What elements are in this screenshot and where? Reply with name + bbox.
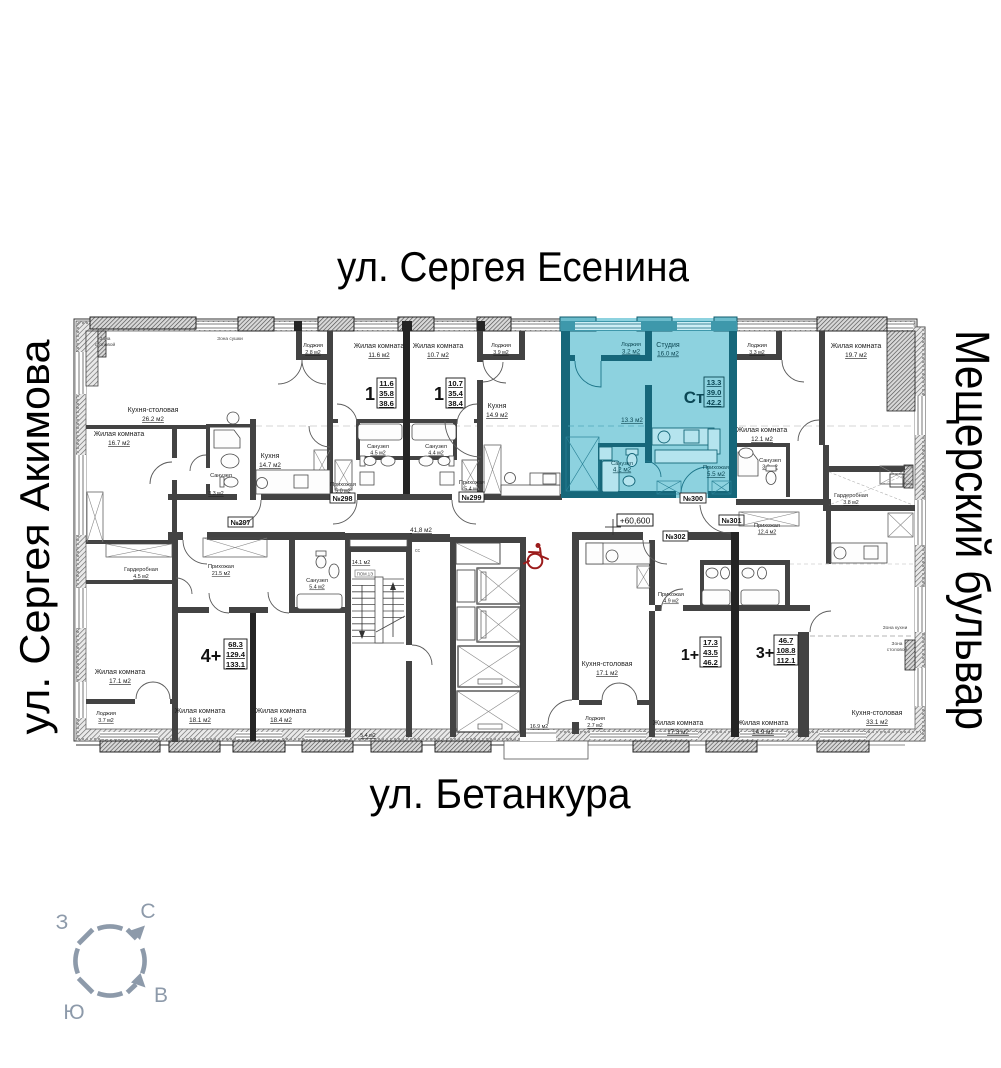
svg-text:112.1: 112.1 (777, 656, 796, 665)
svg-text:14.9 м2: 14.9 м2 (752, 729, 774, 736)
svg-text:133.1: 133.1 (226, 660, 246, 669)
svg-text:5.4 м2: 5.4 м2 (360, 733, 375, 739)
svg-text:16.9 м2: 16.9 м2 (530, 724, 548, 730)
svg-text:3.9 м2: 3.9 м2 (493, 350, 508, 356)
svg-text:13.3: 13.3 (707, 378, 722, 387)
svg-text:Кухня-столовая: Кухня-столовая (128, 407, 179, 414)
svg-text:5.5 м2: 5.5 м2 (707, 471, 726, 478)
svg-text:129.4: 129.4 (226, 650, 246, 659)
svg-text:З: З (56, 911, 69, 934)
svg-text:21.5 м2: 21.5 м2 (212, 571, 230, 577)
svg-text:1: 1 (365, 384, 375, 404)
svg-text:1+: 1+ (681, 647, 699, 664)
svg-text:Лоджия: Лоджия (96, 711, 116, 717)
svg-text:4.5 м2: 4.5 м2 (133, 574, 148, 580)
svg-text:№302: №302 (665, 532, 685, 541)
svg-text:43.5: 43.5 (703, 648, 719, 657)
svg-text:Санузел: Санузел (425, 444, 447, 450)
svg-text:18.1 м2: 18.1 м2 (189, 717, 211, 724)
svg-text:46.7: 46.7 (779, 636, 794, 645)
svg-text:+60,600: +60,600 (620, 516, 651, 526)
svg-text:1: 1 (434, 384, 444, 404)
svg-text:сс: сс (415, 548, 421, 554)
svg-text:17.1 м2: 17.1 м2 (109, 678, 131, 685)
svg-text:11.6 м2: 11.6 м2 (368, 352, 390, 359)
svg-text:Зона: Зона (892, 641, 903, 647)
svg-text:№301: №301 (721, 516, 741, 525)
svg-text:35.8: 35.8 (379, 389, 394, 398)
svg-text:108.8: 108.8 (776, 646, 795, 655)
svg-text:Жилая комната: Жилая комната (94, 431, 145, 438)
svg-text:В: В (154, 984, 168, 1007)
svg-text:46.2: 46.2 (703, 658, 718, 667)
svg-text:2.7 м2: 2.7 м2 (587, 723, 602, 729)
svg-text:ул. Сергея Есенина: ул. Сергея Есенина (337, 243, 690, 290)
svg-text:14.7 м2: 14.7 м2 (259, 462, 281, 469)
svg-text:38.6: 38.6 (379, 399, 394, 408)
svg-text:С: С (140, 900, 155, 923)
svg-text:39.0: 39.0 (707, 388, 722, 397)
svg-text:38.4: 38.4 (448, 399, 464, 408)
svg-text:19.7 м2: 19.7 м2 (845, 352, 867, 359)
svg-text:Гардеробная: Гардеробная (124, 567, 158, 573)
svg-text:Мещерский бульвар: Мещерский бульвар (945, 330, 998, 730)
svg-text:Лоджия: Лоджия (585, 716, 605, 722)
svg-text:12.4 м2: 12.4 м2 (758, 530, 776, 536)
svg-text:17.1 м2: 17.1 м2 (596, 670, 618, 677)
svg-text:Санузел: Санузел (367, 444, 389, 450)
svg-text:2.8 м2: 2.8 м2 (305, 350, 320, 356)
svg-text:№299: №299 (461, 493, 481, 502)
svg-text:12.1 м2: 12.1 м2 (751, 436, 773, 443)
svg-text:Зона сушки: Зона сушки (217, 336, 243, 342)
svg-text:ул. Сергея Акимова: ул. Сергея Акимова (11, 339, 58, 735)
svg-text:Прихожая: Прихожая (459, 480, 485, 486)
svg-text:ПОМ.1Э: ПОМ.1Э (357, 572, 373, 577)
svg-text:Санузел: Санузел (306, 578, 328, 584)
svg-text:Жилая комната: Жилая комната (653, 720, 704, 727)
svg-text:14.9 м2: 14.9 м2 (486, 412, 508, 419)
svg-text:16.0 м2: 16.0 м2 (657, 351, 679, 358)
svg-text:18.4 м2: 18.4 м2 (270, 717, 292, 724)
svg-text:Лоджия: Лоджия (303, 343, 323, 349)
svg-text:26.2 м2: 26.2 м2 (142, 416, 164, 423)
svg-text:Ст: Ст (684, 388, 705, 407)
svg-text:ул. Бетанкура: ул. Бетанкура (370, 770, 632, 817)
svg-text:4.2 м2: 4.2 м2 (613, 467, 632, 474)
svg-text:Жилая комната: Жилая комната (413, 343, 464, 350)
svg-text:17.3: 17.3 (703, 638, 718, 647)
svg-text:Кухня-столовая: Кухня-столовая (852, 710, 903, 717)
svg-text:Жилая комната: Жилая комната (256, 708, 307, 715)
svg-text:10.7: 10.7 (448, 379, 463, 388)
svg-text:35.4: 35.4 (448, 389, 464, 398)
svg-text:Жилая комната: Жилая комната (737, 427, 788, 434)
svg-text:3.7 м2: 3.7 м2 (98, 718, 113, 724)
svg-text:42.2: 42.2 (707, 398, 722, 407)
svg-text:Лоджия: Лоджия (491, 343, 511, 349)
svg-text:4.9 м2: 4.9 м2 (663, 599, 678, 605)
svg-text:Санузел: Санузел (759, 458, 781, 464)
svg-text:Ю: Ю (63, 1001, 84, 1024)
svg-text:Кухня-столовая: Кухня-столовая (582, 661, 633, 668)
svg-text:Гардеробная: Гардеробная (834, 493, 868, 499)
svg-text:Жилая комната: Жилая комната (175, 708, 226, 715)
svg-text:столовой: столовой (887, 646, 908, 653)
svg-text:10.7 м2: 10.7 м2 (427, 352, 449, 359)
svg-text:Жилая комната: Жилая комната (738, 720, 789, 727)
svg-text:Зона: Зона (100, 336, 111, 342)
svg-text:17.3 м2: 17.3 м2 (667, 729, 689, 736)
svg-text:4.5 м2: 4.5 м2 (370, 451, 385, 457)
svg-text:Зона кухни: Зона кухни (883, 625, 908, 631)
svg-text:16.7 м2: 16.7 м2 (108, 440, 130, 447)
svg-text:Студия: Студия (656, 342, 680, 349)
svg-text:Жилая комната: Жилая комната (831, 343, 882, 350)
svg-text:68.3: 68.3 (228, 640, 243, 649)
svg-text:41,8 м2: 41,8 м2 (410, 527, 432, 534)
svg-text:Лоджия: Лоджия (747, 343, 767, 349)
svg-text:№297: №297 (230, 518, 250, 527)
svg-text:Кухня: Кухня (488, 403, 507, 410)
svg-text:4.4 м2: 4.4 м2 (428, 451, 443, 457)
svg-text:14.1 м2: 14.1 м2 (352, 560, 370, 566)
svg-text:Кухня: Кухня (261, 453, 280, 460)
svg-text:4+: 4+ (201, 646, 222, 666)
svg-text:3.3 м2: 3.3 м2 (749, 350, 764, 356)
svg-text:3+: 3+ (756, 645, 774, 662)
svg-text:столовой: столовой (95, 341, 116, 348)
svg-text:Жилая комната: Жилая комната (354, 343, 405, 350)
svg-text:Прихожая: Прихожая (208, 564, 234, 570)
svg-text:13.3 м2: 13.3 м2 (621, 417, 643, 424)
svg-text:3.2 м2: 3.2 м2 (622, 349, 641, 356)
svg-text:3.8 м2: 3.8 м2 (843, 500, 858, 506)
svg-text:№298: №298 (332, 494, 352, 503)
svg-text:№300: №300 (683, 494, 703, 503)
svg-text:Жилая комната: Жилая комната (95, 669, 146, 676)
svg-text:5.4 м2: 5.4 м2 (309, 585, 324, 591)
svg-text:Лоджия: Лоджия (621, 342, 641, 348)
svg-text:11.6: 11.6 (379, 379, 393, 388)
svg-text:3.3 м2: 3.3 м2 (208, 491, 223, 497)
svg-text:33.1 м2: 33.1 м2 (866, 719, 888, 726)
